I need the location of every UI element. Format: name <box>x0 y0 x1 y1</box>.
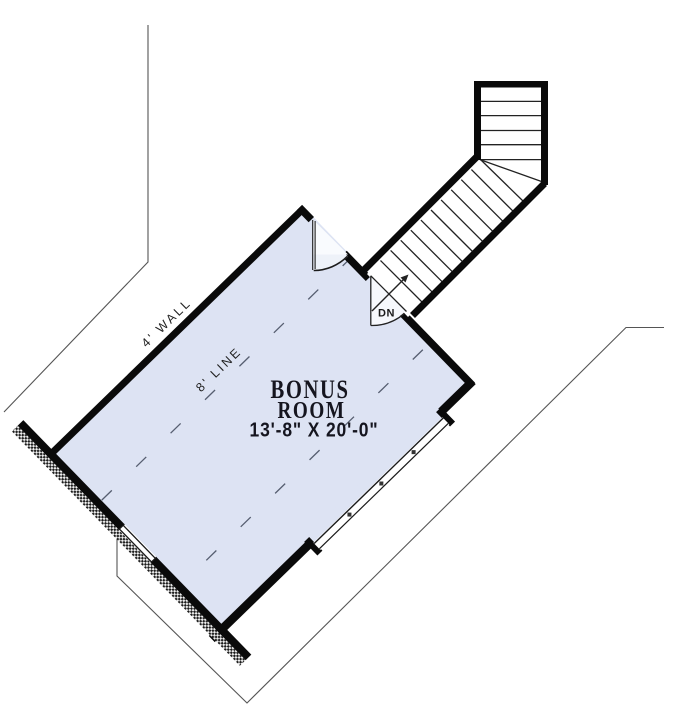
svg-text:13'-8" X 20'-0": 13'-8" X 20'-0" <box>250 419 379 442</box>
svg-text:DN: DN <box>378 308 395 320</box>
